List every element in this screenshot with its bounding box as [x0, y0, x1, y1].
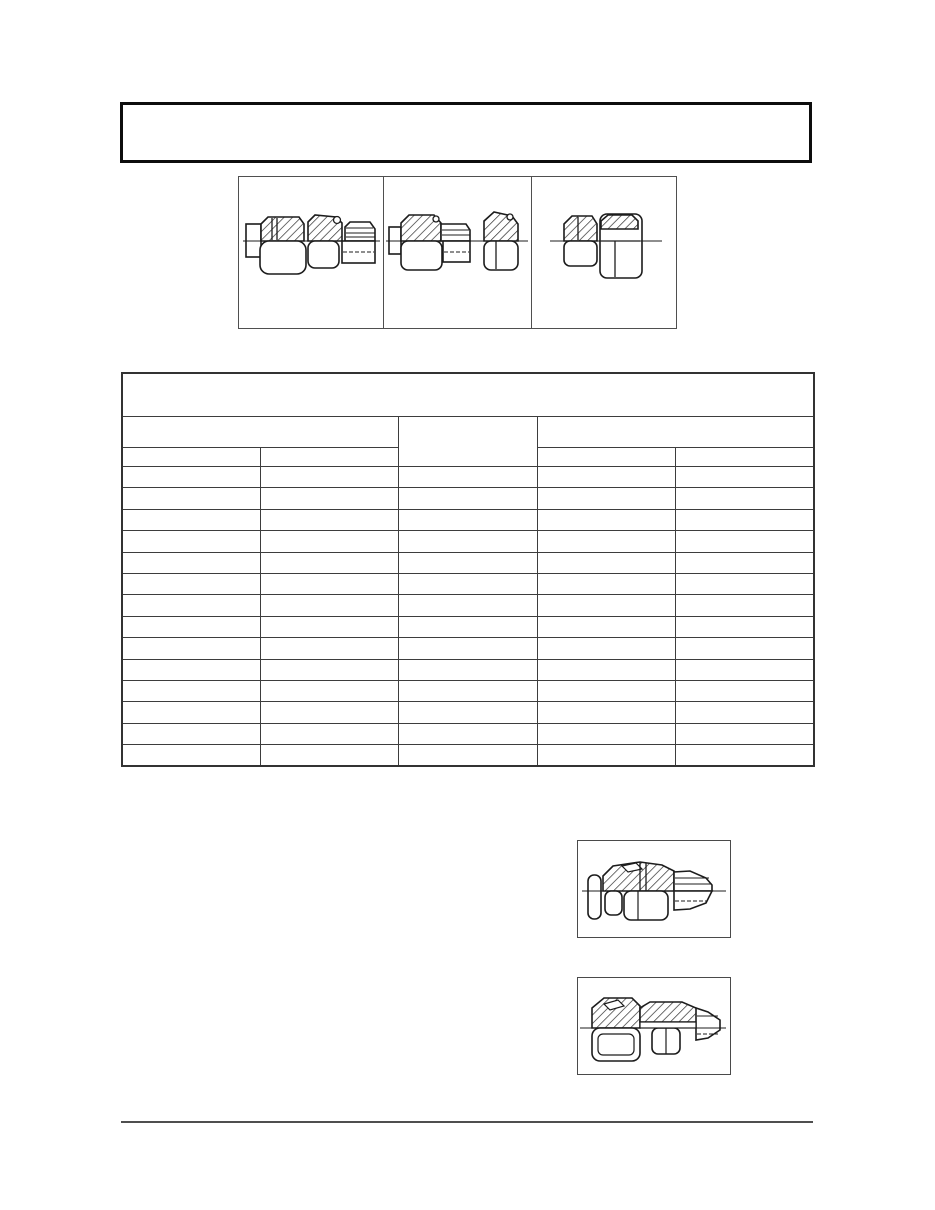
table-cell — [399, 638, 537, 659]
table-cell — [122, 595, 260, 616]
table-cell — [122, 723, 260, 744]
table-cell — [399, 745, 537, 766]
table-cell — [537, 509, 675, 530]
spec-table — [121, 372, 815, 767]
table-row — [122, 702, 814, 723]
left-sub-header-2 — [260, 448, 398, 467]
table-row — [122, 573, 814, 594]
table-cell — [399, 680, 537, 701]
table-cell — [537, 659, 675, 680]
table-cell — [676, 723, 814, 744]
table-cell — [122, 531, 260, 552]
table-cell — [122, 616, 260, 637]
table-row — [122, 680, 814, 701]
figure-cell-3 — [532, 177, 676, 328]
table-cell — [399, 531, 537, 552]
table-cell — [260, 745, 398, 766]
table-row — [122, 552, 814, 573]
table-cell — [122, 488, 260, 509]
table-cell — [260, 531, 398, 552]
tube-union-long-drawing — [239, 177, 383, 328]
table-cell — [537, 616, 675, 637]
page-title-box — [120, 102, 812, 163]
table-cell — [399, 616, 537, 637]
table-cell — [399, 595, 537, 616]
table-cell — [676, 745, 814, 766]
footer-rule — [121, 1121, 813, 1123]
table-cell — [676, 552, 814, 573]
table-cell — [260, 723, 398, 744]
table-cell — [399, 509, 537, 530]
table-cell — [260, 595, 398, 616]
table-cell — [537, 595, 675, 616]
lower-figure-box-b — [577, 977, 731, 1075]
table-cell — [537, 723, 675, 744]
lower-figure-box-a — [577, 840, 731, 938]
table-cell — [676, 488, 814, 509]
table-cell — [122, 573, 260, 594]
table-row — [122, 531, 814, 552]
table-cell — [399, 488, 537, 509]
table-row — [122, 638, 814, 659]
table-cell — [537, 531, 675, 552]
table-cell — [122, 509, 260, 530]
table-group-header-row — [122, 417, 814, 448]
table-cell — [260, 552, 398, 573]
left-sub-header-1 — [122, 448, 260, 467]
table-cell — [399, 723, 537, 744]
table-cell — [122, 552, 260, 573]
table-cell — [122, 638, 260, 659]
table-cell — [676, 509, 814, 530]
figure-cell-2 — [384, 177, 531, 328]
table-cell — [122, 680, 260, 701]
table-cell — [122, 702, 260, 723]
table-cell — [260, 659, 398, 680]
table-cell — [260, 488, 398, 509]
table-cell — [537, 573, 675, 594]
table-cell — [122, 659, 260, 680]
table-row — [122, 723, 814, 744]
table-cell — [676, 467, 814, 488]
body-and-nut-drawing — [384, 177, 530, 328]
table-cell — [537, 680, 675, 701]
table-cell — [122, 467, 260, 488]
table-cell — [260, 616, 398, 637]
table-cell — [676, 573, 814, 594]
table-row — [122, 509, 814, 530]
table-cell — [260, 573, 398, 594]
table-cell — [260, 638, 398, 659]
table-row — [122, 659, 814, 680]
table-cell — [676, 680, 814, 701]
table-title-cell — [122, 373, 814, 417]
figure-strip — [238, 176, 677, 329]
table-cell — [676, 531, 814, 552]
table-cell — [260, 680, 398, 701]
figure-cell-1 — [239, 177, 384, 328]
table-cell — [260, 702, 398, 723]
table-row — [122, 595, 814, 616]
male-connector-a-drawing — [578, 841, 730, 937]
table-cell — [537, 638, 675, 659]
table-cell — [399, 467, 537, 488]
table-row — [122, 745, 814, 766]
table-cell — [260, 509, 398, 530]
table-cell — [537, 745, 675, 766]
table-row — [122, 467, 814, 488]
spec-table-body — [122, 467, 814, 766]
table-cell — [399, 702, 537, 723]
right-group-header-cell — [537, 417, 814, 448]
table-title-row — [122, 373, 814, 417]
table-cell — [537, 552, 675, 573]
table-cell — [537, 467, 675, 488]
right-sub-header-1 — [537, 448, 675, 467]
table-cell — [676, 616, 814, 637]
table-cell — [537, 702, 675, 723]
middle-column-header-cell — [399, 417, 537, 467]
table-cell — [122, 745, 260, 766]
left-group-header-cell — [122, 417, 399, 448]
table-cell — [399, 552, 537, 573]
table-cell — [537, 488, 675, 509]
table-cell — [676, 659, 814, 680]
table-row — [122, 616, 814, 637]
compact-union-drawing — [532, 177, 675, 328]
table-row — [122, 488, 814, 509]
table-cell — [260, 467, 398, 488]
table-cell — [399, 659, 537, 680]
table-cell — [676, 638, 814, 659]
male-connector-b-drawing — [578, 978, 730, 1074]
table-cell — [399, 573, 537, 594]
table-cell — [676, 702, 814, 723]
right-sub-header-2 — [676, 448, 814, 467]
table-cell — [676, 595, 814, 616]
